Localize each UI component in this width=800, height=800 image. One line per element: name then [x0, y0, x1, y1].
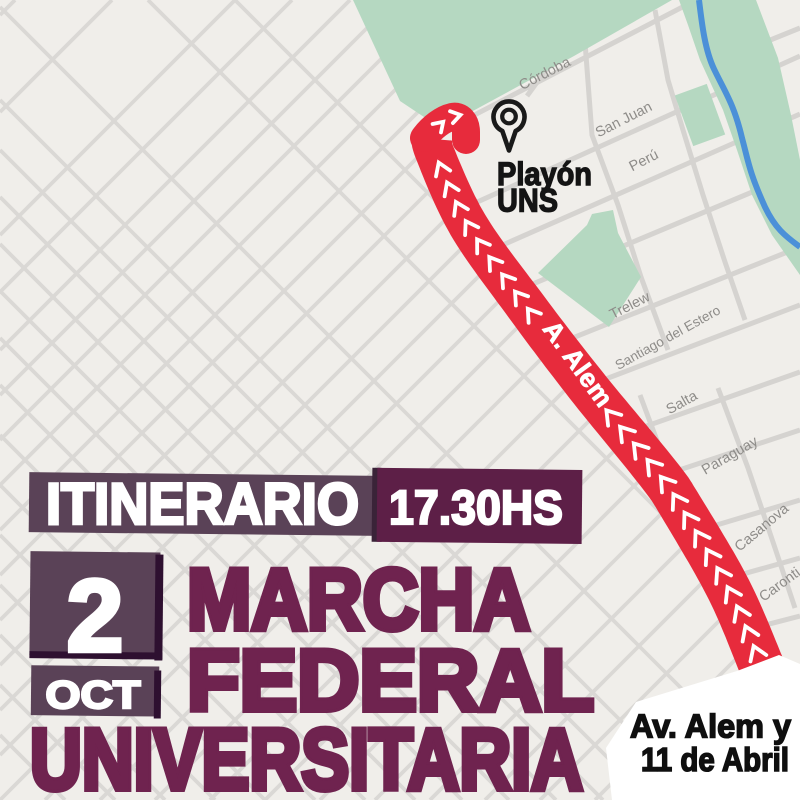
svg-text:UNS: UNS: [497, 183, 558, 219]
svg-text:11 de Abril: 11 de Abril: [641, 742, 789, 779]
svg-text:ITINERARIO: ITINERARIO: [46, 472, 359, 537]
svg-text:2: 2: [67, 559, 124, 673]
svg-text:OCT: OCT: [46, 674, 141, 717]
svg-text:UNIVERSITARIA: UNIVERSITARIA: [30, 712, 583, 800]
svg-text:17.30HS: 17.30HS: [389, 482, 563, 535]
svg-text:Av. Alem y: Av. Alem y: [630, 709, 791, 746]
